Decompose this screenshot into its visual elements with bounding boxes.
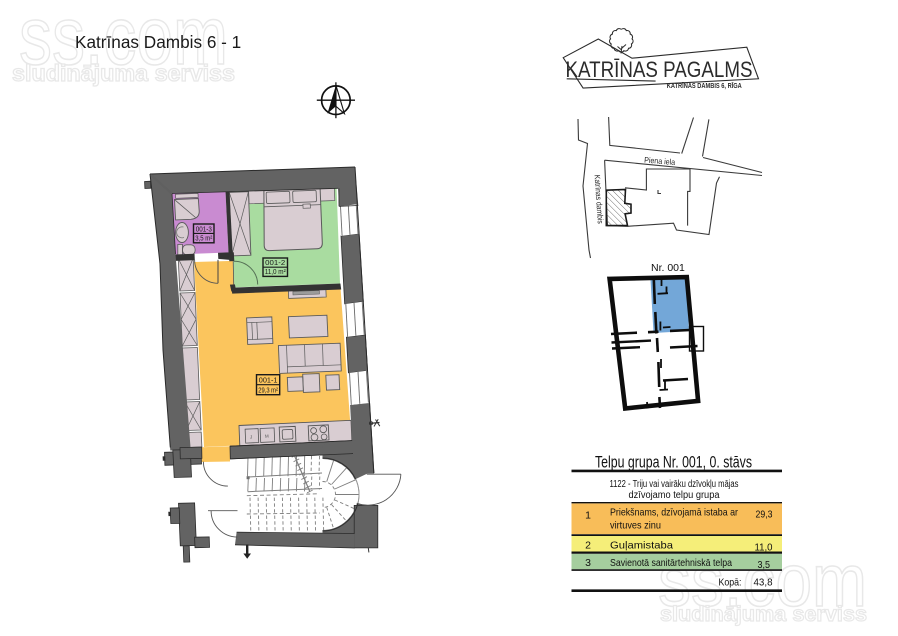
svg-text:43,8: 43,8 (754, 577, 773, 589)
svg-text:sludinājuma serviss: sludinājuma serviss (660, 603, 867, 626)
svg-text:001-2: 001-2 (265, 260, 285, 267)
svg-text:Guļamistaba: Guļamistaba (610, 540, 673, 552)
svg-text:29,3: 29,3 (756, 509, 773, 521)
svg-text:J: J (250, 434, 252, 439)
svg-text:3,5 m²: 3,5 m² (195, 235, 213, 242)
svg-text:3: 3 (585, 557, 591, 569)
svg-text:Savienotā sanitārtehniskā telp: Savienotā sanitārtehniskā telpa (610, 557, 732, 569)
svg-text:001-1: 001-1 (259, 378, 278, 385)
svg-text:1122 - Triju vai vairāku dzīvo: 1122 - Triju vai vairāku dzīvokļu mājas (610, 479, 739, 490)
svg-text:1: 1 (585, 510, 591, 522)
svg-text:001-3: 001-3 (196, 226, 212, 233)
svg-text:Nr. 001: Nr. 001 (651, 262, 685, 274)
svg-text:Priekšnams, dzīvojamā istaba a: Priekšnams, dzīvojamā istaba ar (610, 507, 738, 519)
svg-text:2: 2 (585, 540, 591, 552)
svg-text:KATRĪNAS PAGALMS: KATRĪNAS PAGALMS (566, 57, 753, 82)
svg-text:KATRĪNAS DAMBIS 6, RĪGA: KATRĪNAS DAMBIS 6, RĪGA (667, 81, 742, 90)
svg-text:M: M (265, 434, 269, 439)
svg-text:Telpu grupa Nr. 001, 0. stāvs: Telpu grupa Nr. 001, 0. stāvs (595, 454, 752, 472)
svg-text:virtuves zinu: virtuves zinu (610, 520, 661, 532)
svg-text:Kopā:: Kopā: (719, 577, 742, 589)
svg-text:11,0: 11,0 (755, 542, 773, 554)
svg-text:11,0 m²: 11,0 m² (265, 269, 287, 276)
svg-text:Katrīnas Dambis 6 - 1: Katrīnas Dambis 6 - 1 (75, 32, 241, 52)
svg-text:dzīvojamo telpu grupa: dzīvojamo telpu grupa (629, 490, 720, 501)
svg-text:sludinājuma serviss: sludinājuma serviss (12, 60, 235, 86)
svg-text:29,3 m²: 29,3 m² (258, 387, 278, 394)
svg-text:3,5: 3,5 (758, 559, 771, 571)
